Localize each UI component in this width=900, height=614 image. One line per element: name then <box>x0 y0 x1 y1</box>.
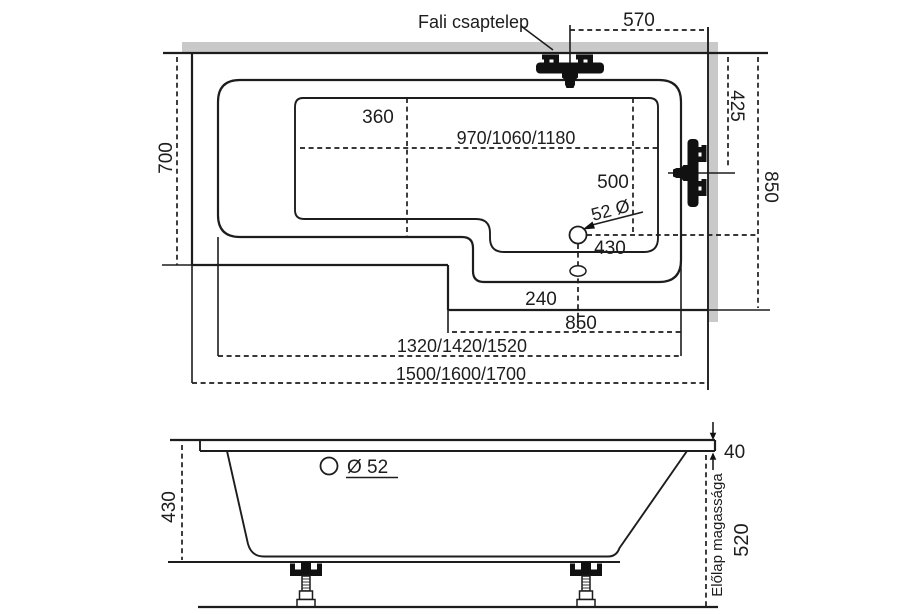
top-view: Fali csaptelep 570 700 360 970/1060/1180… <box>156 10 781 390</box>
top-wall <box>182 42 718 53</box>
extension-lines <box>162 25 770 383</box>
overflow-hole <box>570 266 586 276</box>
faucet-label: Fali csaptelep <box>418 12 529 32</box>
dim-label-700: 700 <box>156 142 177 174</box>
tub-outer-outline <box>192 53 708 310</box>
dim-label-360: 360 <box>362 107 394 128</box>
side-hole-diameter-label: Ø 52 <box>347 457 388 478</box>
dim-label-basin-lengths: 970/1060/1180 <box>457 128 576 148</box>
dim-label-425: 425 <box>726 90 747 122</box>
dim-label-40: 40 <box>724 442 745 463</box>
dim-label-850-bottom: 850 <box>565 313 597 334</box>
dim-label-430: 430 <box>594 238 626 259</box>
dim-label-240: 240 <box>525 289 557 310</box>
bathtub-technical-drawing: Fali csaptelep 570 700 360 970/1060/1180… <box>0 0 900 614</box>
dim-label-rim-lengths: 1320/1420/1520 <box>397 336 527 356</box>
dim-label-430-side: 430 <box>159 491 180 523</box>
side-hole-icon <box>321 458 338 475</box>
front-panel-label: Előlap magassága <box>709 473 726 597</box>
dim-label-overall-lengths: 1500/1600/1700 <box>396 364 526 384</box>
dim-label-520: 520 <box>731 523 753 556</box>
dim-label-850-right: 850 <box>760 171 781 203</box>
side-basin-profile <box>227 451 687 557</box>
dim-label-drain-diameter: 52 Ø <box>589 195 632 224</box>
side-view-dimension-lines <box>182 422 716 606</box>
dim-label-500: 500 <box>597 172 629 193</box>
drawing-svg: Fali csaptelep 570 700 360 970/1060/1180… <box>0 0 900 614</box>
side-view: Ø 52 430 40 520 Előlap magassága <box>159 422 753 607</box>
right-wall <box>708 42 718 322</box>
adjustable-foot-right <box>570 562 602 607</box>
dim-label-570: 570 <box>623 10 655 31</box>
adjustable-foot-left <box>290 562 322 607</box>
side-rim-slab <box>170 440 715 451</box>
